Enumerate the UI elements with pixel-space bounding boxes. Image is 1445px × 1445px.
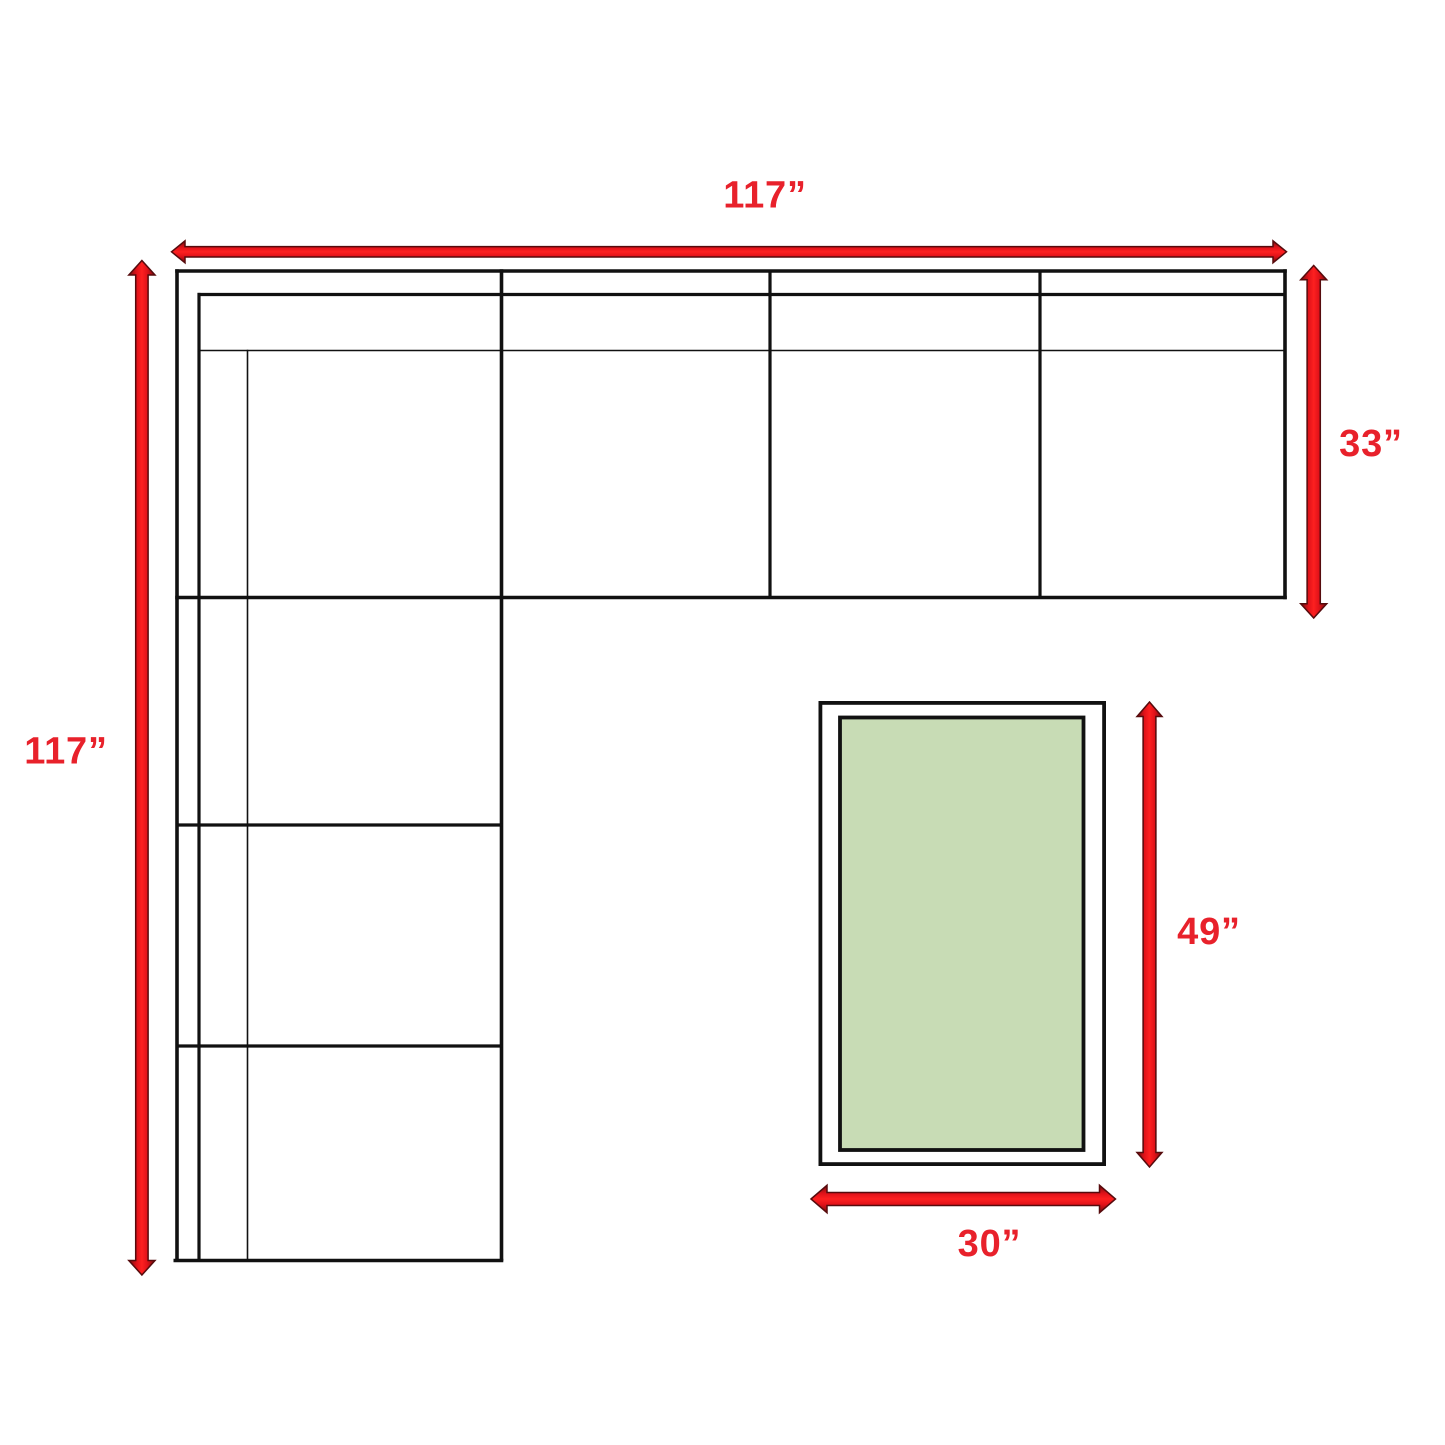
svg-text:117”: 117” bbox=[723, 174, 807, 216]
svg-text:30”: 30” bbox=[958, 1223, 1022, 1265]
svg-text:117”: 117” bbox=[24, 730, 108, 772]
svg-text:49”: 49” bbox=[1177, 911, 1241, 953]
svg-text:33”: 33” bbox=[1339, 423, 1403, 465]
